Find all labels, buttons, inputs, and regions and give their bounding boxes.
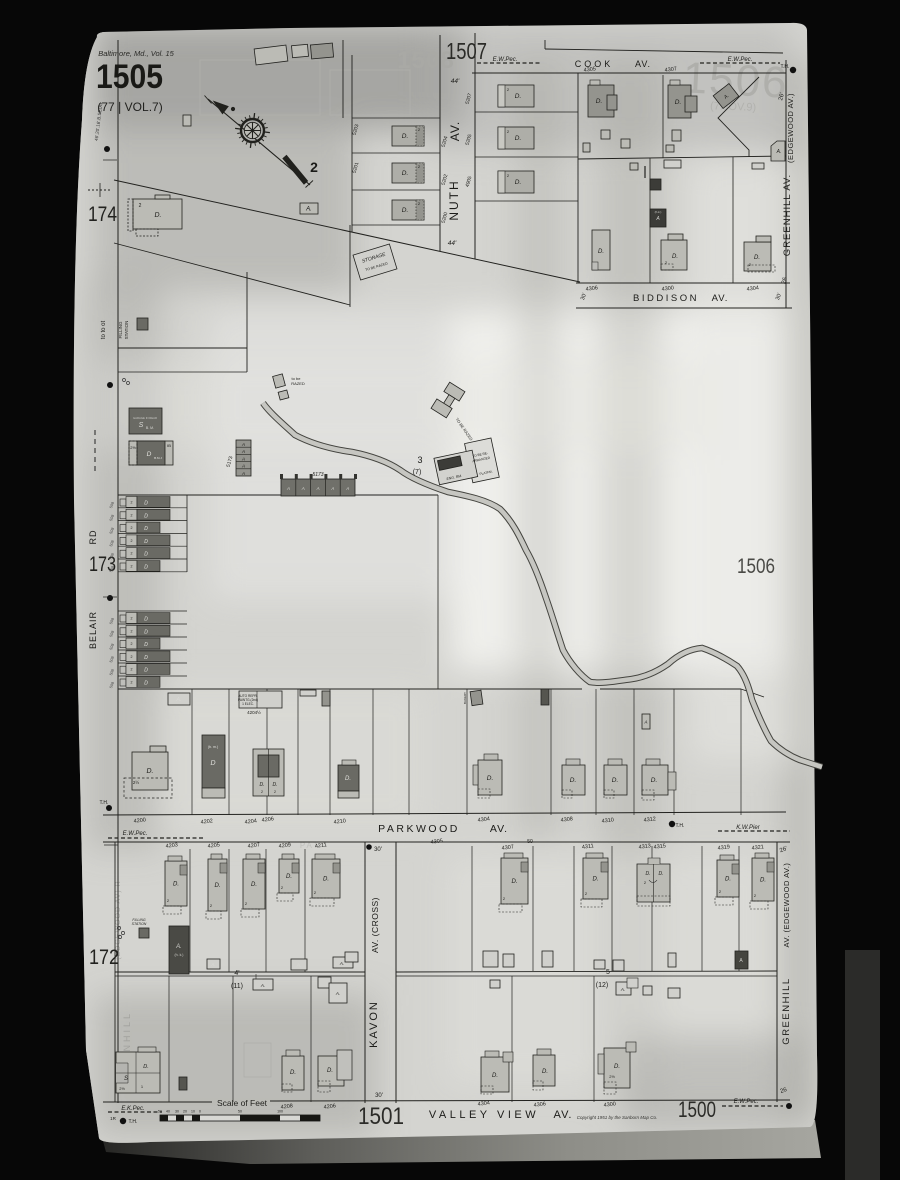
svg-text:D: D (144, 617, 148, 623)
svg-text:D: D (144, 629, 148, 635)
svg-text:D: D (210, 760, 215, 767)
svg-text:D.: D. (614, 1064, 620, 1070)
svg-text:AV.: AV. (448, 121, 462, 141)
svg-text:D.: D. (512, 879, 518, 885)
svg-text:STATION: STATION (132, 922, 147, 926)
svg-text:0: 0 (199, 1110, 201, 1114)
svg-text:1505: 1505 (96, 58, 163, 96)
svg-text:2½: 2½ (133, 779, 140, 785)
svg-text:IB: IB (167, 443, 171, 448)
svg-text:D.: D. (147, 768, 154, 775)
svg-text:A.: A. (296, 963, 301, 968)
svg-text:(7.JOV.9): (7.JOV.9) (710, 100, 756, 114)
svg-text:2: 2 (131, 552, 133, 556)
svg-text:A: A (345, 486, 349, 491)
svg-text:30': 30' (374, 847, 382, 853)
svg-text:A: A (241, 442, 245, 447)
svg-text:D: D (144, 668, 148, 674)
svg-text:2: 2 (310, 159, 318, 175)
svg-text:2: 2 (139, 203, 142, 209)
svg-text:D: D (144, 642, 148, 648)
svg-text:A.: A. (260, 983, 265, 988)
svg-text:44': 44' (448, 240, 457, 247)
svg-text:S: S (139, 422, 144, 429)
svg-text:1R: 1R (110, 1116, 117, 1121)
svg-text:(77❘VOL.7): (77❘VOL.7) (97, 100, 162, 114)
svg-text:50: 50 (158, 1110, 162, 1114)
svg-text:D.: D. (515, 135, 522, 142)
svg-text:2: 2 (131, 526, 133, 530)
svg-text:A.: A. (776, 149, 782, 155)
svg-text:A.: A. (210, 962, 215, 967)
svg-text:A: A (316, 486, 320, 491)
svg-text:D.: D. (659, 871, 664, 877)
svg-text:1501: 1501 (358, 1103, 404, 1130)
svg-text:D.: D. (345, 776, 351, 782)
svg-text:D.: D. (515, 179, 522, 186)
svg-text:B.M.J: B.M.J (154, 456, 162, 460)
svg-text:2: 2 (131, 539, 133, 543)
svg-text:A: A (655, 216, 660, 222)
svg-text:D.: D. (612, 777, 619, 784)
svg-text:4': 4' (234, 970, 239, 977)
svg-text:2: 2 (131, 513, 133, 517)
svg-text:(h.k.): (h.k.) (655, 210, 662, 214)
svg-text:(h. k.): (h. k.) (175, 953, 184, 957)
svg-text:30': 30' (375, 1093, 383, 1099)
svg-text:1506: 1506 (737, 555, 775, 578)
svg-text:A: A (241, 449, 245, 454)
svg-text:D.: D. (596, 98, 603, 105)
svg-text:STATION: STATION (124, 321, 129, 340)
svg-text:K.W.Pier: K.W.Pier (736, 825, 760, 831)
svg-text:Scale of Feet: Scale of Feet (217, 1098, 268, 1108)
svg-text:50: 50 (238, 1110, 242, 1114)
svg-text:2: 2 (131, 617, 133, 621)
svg-text:AV.: AV. (635, 59, 651, 69)
svg-text:D.: D. (251, 882, 257, 888)
svg-text:A.: A. (305, 207, 312, 213)
svg-text:20: 20 (183, 1110, 187, 1114)
svg-text:T.H.: T.H. (676, 823, 685, 829)
svg-text:D.: D. (646, 871, 651, 877)
svg-text:D.: D. (327, 1068, 333, 1074)
svg-text:2½: 2½ (609, 1074, 615, 1079)
svg-text:A: A (241, 464, 245, 469)
svg-text:44': 44' (451, 78, 460, 85)
svg-text:E.W.Pec.: E.W.Pec. (734, 1099, 759, 1105)
svg-text:FILLING: FILLING (118, 321, 123, 339)
svg-text:D: D (144, 655, 148, 661)
svg-text:BIDDISON: BIDDISON (633, 293, 699, 304)
svg-text:to to ot: to to ot (101, 321, 107, 340)
svg-text:2: 2 (261, 790, 263, 794)
svg-text:D.: D. (542, 1069, 548, 1075)
svg-text:GREENHILL: GREENHILL (781, 977, 792, 1044)
svg-text:A: A (241, 471, 245, 476)
svg-text:T.H.: T.H. (129, 1119, 138, 1125)
svg-text:(EDGEWOOD AV.): (EDGEWOOD AV.) (786, 93, 795, 163)
svg-text:D.: D. (215, 883, 221, 889)
svg-text:40: 40 (166, 1110, 170, 1114)
svg-text:A: A (330, 486, 334, 491)
svg-text:10: 10 (191, 1110, 195, 1114)
svg-text:AV.: AV. (712, 293, 729, 304)
svg-text:D: D (144, 552, 148, 558)
svg-text:T.H.: T.H. (100, 800, 109, 806)
svg-text:VALLEY VIEW: VALLEY VIEW (429, 1109, 539, 1121)
svg-text:(11): (11) (231, 983, 243, 990)
svg-text:E.W.Pec.: E.W.Pec. (728, 57, 753, 63)
svg-text:1 ELEC.: 1 ELEC. (242, 702, 254, 706)
svg-text:D.: D. (286, 874, 292, 880)
svg-text:S: S (124, 1076, 128, 1082)
svg-text:2: 2 (131, 668, 133, 672)
svg-text:D.: D. (260, 782, 265, 788)
svg-text:D.: D. (402, 170, 409, 177)
svg-text:D: D (144, 681, 148, 687)
svg-text:D: D (147, 451, 152, 458)
svg-text:50: 50 (527, 839, 533, 845)
svg-text:174: 174 (88, 203, 117, 226)
svg-text:A.: A. (175, 944, 182, 950)
svg-text:A.: A. (620, 987, 625, 992)
svg-text:KAVON: KAVON (368, 1000, 380, 1048)
svg-text:D.: D. (290, 1070, 296, 1076)
svg-text:AV. (CROSS): AV. (CROSS) (370, 897, 380, 953)
svg-text:2: 2 (131, 501, 133, 505)
svg-text:D: D (144, 526, 148, 532)
svg-text:D.: D. (402, 207, 409, 214)
svg-text:1507: 1507 (446, 38, 487, 64)
svg-text:PARKWOOD: PARKWOOD (378, 823, 460, 835)
svg-text:D.: D. (487, 775, 494, 782)
svg-text:BAKERY: BAKERY (463, 692, 467, 704)
svg-text:D.: D. (598, 249, 604, 255)
svg-text:A.: A. (175, 697, 181, 703)
svg-text:NUTH: NUTH (447, 179, 461, 220)
svg-text:A: A (301, 486, 305, 491)
svg-text:1500: 1500 (678, 1097, 716, 1122)
svg-text:BELAIR: BELAIR (88, 611, 98, 649)
svg-text:AV.: AV. (490, 823, 508, 835)
svg-text:5: 5 (606, 969, 610, 976)
svg-text:4204½: 4204½ (247, 709, 261, 715)
svg-text:B. M.: B. M. (146, 426, 154, 430)
svg-text:(7): (7) (413, 469, 422, 476)
svg-text:D.: D. (155, 212, 162, 219)
svg-text:Copyright 1951 by the Sanborn: Copyright 1951 by the Sanborn Map Co. (577, 1115, 658, 1120)
svg-text:2½: 2½ (119, 1086, 125, 1091)
svg-text:(12): (12) (596, 982, 608, 989)
svg-text:D.: D. (754, 255, 760, 261)
svg-text:(b. m.): (b. m.) (208, 745, 218, 749)
svg-text:5173: 5173 (312, 472, 323, 478)
svg-text:AV.: AV. (554, 1109, 573, 1121)
svg-text:D: D (144, 565, 148, 571)
svg-text:3: 3 (417, 455, 422, 465)
svg-text:A: A (241, 456, 245, 461)
svg-text:2: 2 (274, 790, 276, 794)
svg-text:D.: D. (725, 877, 731, 883)
svg-text:Baltimore, Md., Vol. 15: Baltimore, Md., Vol. 15 (98, 49, 174, 58)
svg-text:D.: D. (672, 254, 678, 260)
svg-text:D.: D. (675, 99, 682, 106)
svg-text:A: A (643, 720, 647, 725)
svg-text:30: 30 (175, 1110, 179, 1114)
svg-text:E.W.Pec.: E.W.Pec. (123, 831, 148, 837)
svg-text:RAZED: RAZED (291, 381, 305, 386)
svg-text:GREENHILL AV.: GREENHILL AV. (782, 174, 793, 256)
svg-text:2: 2 (131, 655, 133, 659)
svg-text:A.: A. (339, 961, 344, 966)
svg-text:GARAGE IN REAR: GARAGE IN REAR (133, 416, 157, 420)
svg-text:2½: 2½ (130, 445, 136, 450)
svg-text:D.: D. (143, 1064, 149, 1070)
svg-text:D.: D. (570, 777, 577, 784)
svg-text:T.H.: T.H. (781, 64, 790, 70)
svg-text:2: 2 (131, 681, 133, 685)
svg-text:D: D (144, 501, 148, 507)
svg-text:E.W.Pec.: E.W.Pec. (493, 57, 518, 63)
svg-text:RD: RD (88, 530, 98, 545)
svg-text:D.: D. (651, 777, 658, 784)
svg-text:A.: A. (335, 991, 340, 996)
svg-text:D.: D. (402, 133, 409, 140)
svg-text:AV. (EDGEWOOD AV.): AV. (EDGEWOOD AV.) (782, 863, 791, 948)
svg-text:D.: D. (760, 878, 766, 884)
svg-text:D: D (144, 513, 148, 519)
svg-text:E.K.Pec.: E.K.Pec. (121, 1106, 144, 1112)
svg-text:172: 172 (89, 946, 119, 969)
svg-text:A: A (286, 486, 290, 491)
svg-text:D.: D. (593, 877, 599, 883)
svg-text:2: 2 (131, 565, 133, 569)
svg-text:D.: D. (323, 877, 329, 883)
svg-text:2: 2 (131, 642, 133, 646)
svg-text:2: 2 (131, 629, 133, 633)
svg-text:D.: D. (492, 1073, 498, 1079)
svg-text:D.: D. (173, 882, 179, 888)
svg-text:D.: D. (515, 93, 522, 100)
svg-text:D.: D. (273, 782, 278, 788)
svg-text:D: D (144, 539, 148, 545)
